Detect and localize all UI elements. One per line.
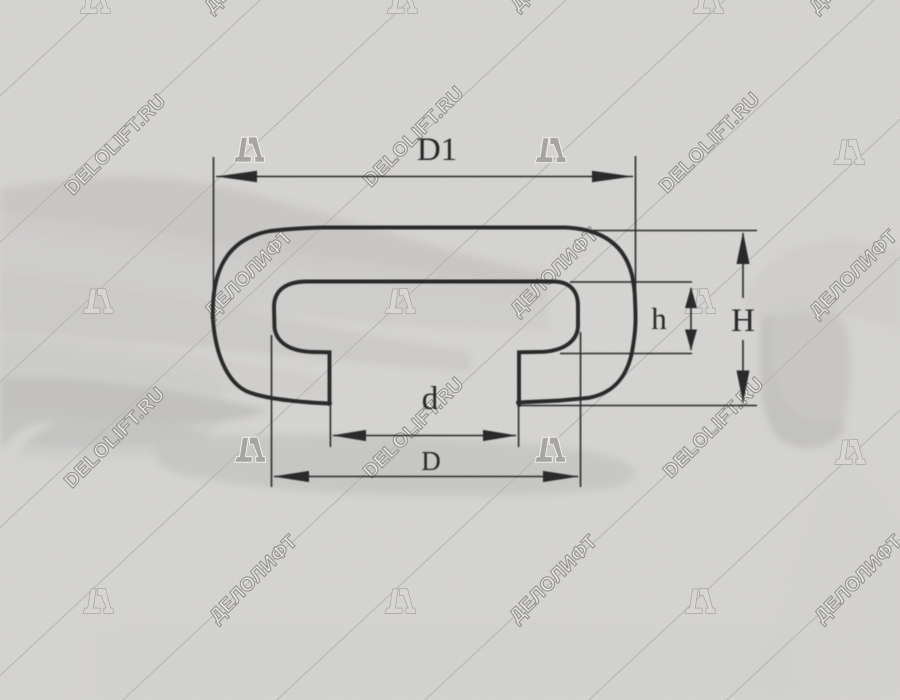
svg-text:d: d — [422, 381, 439, 417]
svg-text:D1: D1 — [417, 132, 457, 168]
svg-text:D: D — [421, 446, 441, 476]
svg-text:H: H — [731, 303, 755, 339]
svg-text:h: h — [651, 301, 667, 336]
